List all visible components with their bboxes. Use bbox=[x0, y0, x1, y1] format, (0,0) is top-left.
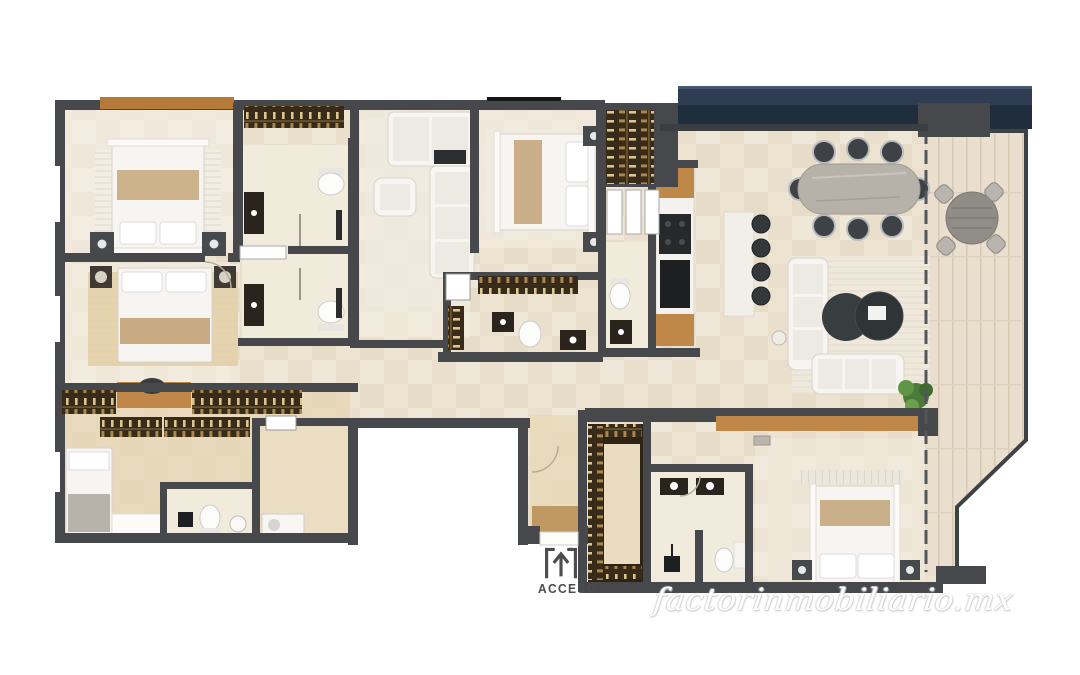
closet-rack-master-top bbox=[604, 424, 642, 437]
master-wood-beam bbox=[716, 416, 924, 431]
bathroomB-sink bbox=[251, 302, 257, 308]
tv-side-table bbox=[434, 150, 466, 164]
bedroom2-pillow bbox=[122, 272, 162, 292]
wall-lowerbath-top bbox=[162, 482, 256, 489]
master-bed-blanket bbox=[820, 500, 890, 526]
living-sofa-cushion bbox=[818, 359, 842, 389]
closet-rack-lower1 bbox=[62, 390, 116, 414]
closet-door-panel bbox=[607, 190, 622, 234]
master-bath-sink bbox=[670, 482, 678, 490]
wall-center-bedroom-right bbox=[596, 103, 606, 248]
wall-powder-left bbox=[598, 240, 606, 352]
bedroom1-speaker-cone bbox=[98, 240, 107, 249]
bedroom2-blanket bbox=[120, 318, 210, 344]
closet-rack-centerbath-side bbox=[448, 306, 464, 350]
window-top-center bbox=[487, 97, 561, 101]
wall-block-topright bbox=[918, 103, 990, 137]
bedroom1-speaker-cone bbox=[210, 240, 219, 249]
kitchen-burner bbox=[679, 221, 685, 227]
small-bed-mat bbox=[112, 514, 164, 534]
window-left-2 bbox=[53, 296, 60, 342]
plant-leaf bbox=[898, 380, 914, 396]
center-bed-pillow bbox=[566, 142, 588, 182]
wall-master-beam-band bbox=[716, 408, 924, 417]
small-bed-pillow bbox=[69, 452, 109, 470]
master-bath-sink bbox=[706, 482, 714, 490]
dining-chair bbox=[813, 215, 835, 237]
wall-masterbath-top bbox=[645, 464, 753, 472]
wall-notch-right bbox=[518, 418, 528, 545]
window-left-1 bbox=[53, 166, 60, 222]
wall-lowerbath-left bbox=[160, 482, 167, 538]
closet-rack-lower3 bbox=[100, 417, 162, 437]
wall-bed1-bath-divider bbox=[233, 103, 243, 253]
lower-toilet bbox=[200, 505, 220, 531]
access-entry-marker: ACCESO bbox=[536, 544, 586, 596]
tv-sofa-cushion bbox=[393, 117, 429, 161]
closet-rack-entry-wardrobe bbox=[606, 110, 654, 184]
utility-washer-door bbox=[268, 519, 280, 531]
kitchen-stool bbox=[752, 263, 770, 281]
living-sofa-cushion bbox=[793, 297, 823, 327]
floor-lamp bbox=[772, 331, 786, 345]
kitchen-burner bbox=[665, 221, 671, 227]
utility-window bbox=[266, 416, 296, 430]
wall-tv-bottom bbox=[350, 340, 450, 348]
wall-bedroom-divider-stub bbox=[228, 253, 240, 262]
lower-sink bbox=[230, 516, 246, 532]
wall-centerbath-bottom bbox=[438, 352, 603, 362]
wall-beam-endcap bbox=[918, 408, 938, 436]
closet-door-panel bbox=[645, 190, 659, 234]
watermark-text: factorinmobiliario.mx bbox=[652, 582, 1017, 618]
wall-tv-left bbox=[350, 103, 359, 348]
lower-shower bbox=[178, 512, 193, 527]
wall-masterbath-stub bbox=[695, 530, 703, 582]
closet-door-panel bbox=[626, 190, 641, 234]
tv-sofa-cushion bbox=[435, 242, 469, 274]
wall-entry-stub-left bbox=[528, 526, 540, 544]
master-closet-rug bbox=[604, 444, 640, 564]
closet-rack-centerbath bbox=[478, 276, 578, 294]
centerbath-toilet bbox=[519, 321, 541, 347]
kitchen-stool bbox=[752, 287, 770, 305]
master-bed-pillow bbox=[858, 554, 894, 578]
powder-sink bbox=[618, 329, 624, 335]
tv-sofa-cushion bbox=[435, 172, 469, 204]
kitchen-stove bbox=[659, 214, 691, 254]
window-sill-living bbox=[660, 124, 928, 131]
dining-chair bbox=[847, 218, 869, 240]
dining-chair bbox=[881, 215, 903, 237]
bedroom2-lamp bbox=[95, 271, 107, 283]
centerbath-window bbox=[446, 274, 470, 300]
kitchen-oven bbox=[660, 260, 690, 308]
closet-rack-master-bottom bbox=[604, 566, 642, 579]
plan-items bbox=[53, 86, 1032, 593]
kitchen-burner bbox=[665, 239, 671, 245]
access-label: ACCESO bbox=[538, 581, 584, 596]
bathroomB-shower-niche bbox=[336, 288, 342, 318]
powder-toilet bbox=[610, 283, 630, 309]
wall-lower-suite-bottom bbox=[55, 533, 358, 543]
wall-bathrooms-bottom bbox=[238, 338, 352, 346]
bedroom1-pillow bbox=[120, 222, 156, 244]
bedroom1-blanket bbox=[117, 170, 199, 200]
center-bed-canopy bbox=[494, 131, 500, 233]
wall-tv-right bbox=[470, 103, 479, 253]
master-headboard-stripes bbox=[800, 470, 904, 484]
wall-masterbath-right bbox=[745, 464, 753, 582]
bedroom1-canopy-top bbox=[107, 139, 209, 146]
wall-kitchen-left bbox=[648, 160, 656, 356]
closet-rack-bedroom1 bbox=[244, 106, 344, 128]
wall-top-wood-lintel bbox=[100, 97, 234, 109]
closet-rack-master-left bbox=[588, 426, 603, 580]
bathroomB-toilet-tank bbox=[318, 324, 344, 331]
dining-chair bbox=[881, 141, 903, 163]
bedroom1-pillow bbox=[160, 222, 196, 244]
kitchen-stool bbox=[752, 215, 770, 233]
notch-void bbox=[358, 428, 518, 545]
master-bed-pillow bbox=[820, 554, 856, 578]
master-desk-stool bbox=[754, 436, 770, 445]
window-left-3 bbox=[53, 452, 60, 492]
master-toilet bbox=[715, 548, 733, 572]
center-bed-blanket bbox=[514, 140, 542, 224]
bathroomA-sink bbox=[251, 210, 257, 216]
access-arrow-icon bbox=[543, 544, 579, 580]
living-sofa-cushion bbox=[793, 264, 823, 294]
dining-chair bbox=[847, 138, 869, 160]
wall-bedroom-divider bbox=[55, 253, 205, 262]
dining-table bbox=[798, 164, 920, 214]
center-bed-canopy bbox=[588, 131, 595, 233]
closet-rack-lower4 bbox=[164, 417, 250, 437]
kitchen-cabinet-wood bbox=[656, 314, 694, 346]
center-bed-pillow bbox=[566, 186, 588, 226]
master-bed-canopy bbox=[894, 484, 900, 588]
wall-bathAB-divider bbox=[288, 246, 350, 254]
master-shower bbox=[664, 556, 680, 572]
small-bed-blanket bbox=[68, 494, 110, 532]
master-speaker-cone bbox=[906, 566, 914, 574]
coffee-table-book bbox=[868, 306, 886, 320]
tv-sofa-cushion bbox=[435, 207, 469, 239]
centerbath-sink bbox=[500, 319, 506, 325]
wall-master-top-band bbox=[585, 408, 718, 422]
bathroomA-toilet bbox=[318, 173, 344, 195]
bathAB-open-door bbox=[240, 246, 286, 259]
floorplan-image: ACCESO factorinmobiliario.mx bbox=[0, 0, 1080, 675]
wall-notch-left bbox=[348, 418, 358, 545]
kitchen-burner bbox=[679, 239, 685, 245]
living-sofa-cushion bbox=[872, 359, 896, 389]
master-speaker-cone bbox=[798, 566, 806, 574]
wall-kitchen-bottom bbox=[598, 348, 700, 357]
master-towel bbox=[734, 542, 746, 568]
centerbath-sink2 bbox=[570, 337, 577, 344]
bedroom2-pillow bbox=[166, 272, 206, 292]
tv-armchair-cushion bbox=[380, 184, 410, 210]
canopy-edge-highlight bbox=[678, 86, 1032, 89]
bathroomA-shower-niche bbox=[336, 210, 342, 240]
closet-rack-lower2 bbox=[192, 390, 302, 414]
wall-kitchen-top bbox=[648, 160, 698, 168]
dining-chair bbox=[813, 141, 835, 163]
wall-utility-left bbox=[252, 418, 260, 540]
kitchen-island bbox=[724, 212, 754, 316]
wall-master-closet-right bbox=[643, 418, 651, 584]
wall-notch-top bbox=[348, 418, 530, 428]
living-sofa-cushion bbox=[845, 359, 869, 389]
kitchen-stool bbox=[752, 239, 770, 257]
